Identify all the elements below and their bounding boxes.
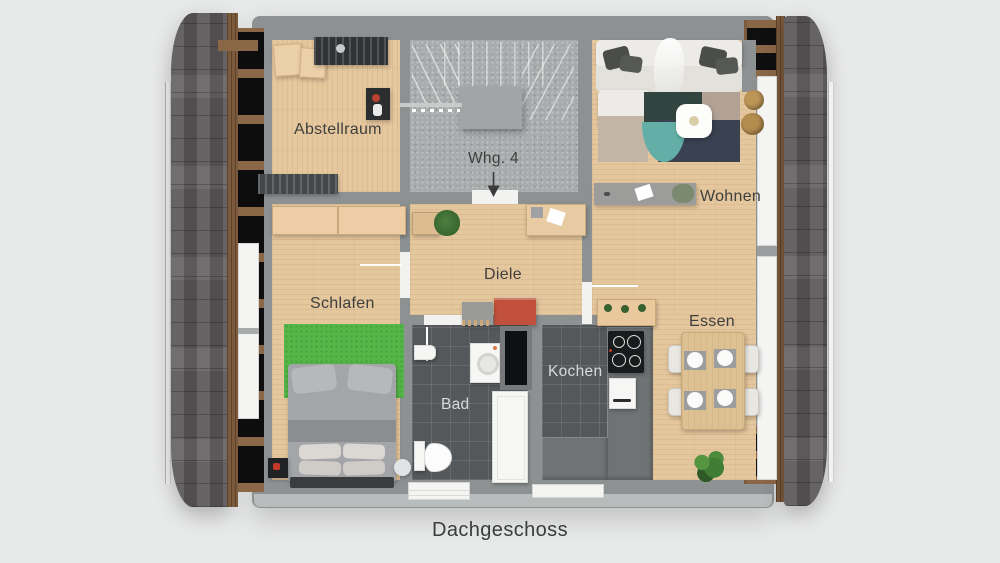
stair-railing <box>400 103 462 107</box>
cooktop-burner <box>612 353 626 367</box>
label-wohnen: Wohnen <box>700 188 761 206</box>
shelving-rack <box>314 37 388 65</box>
rack-item <box>336 44 345 53</box>
cooktop <box>608 331 644 373</box>
desk-laptop <box>531 207 543 218</box>
red-cabinet <box>494 298 536 325</box>
cooktop-burner <box>627 335 641 349</box>
floor-caption: Dachgeschoss <box>0 519 1000 542</box>
shelf-plant <box>621 305 629 313</box>
label-schlafen: Schlafen <box>310 295 375 313</box>
label-essen: Essen <box>689 313 735 331</box>
label-kochen: Kochen <box>548 363 602 381</box>
roof-right <box>784 16 827 506</box>
schlafen-door-opening <box>400 252 410 298</box>
hall-plant <box>434 210 460 236</box>
bed-pillow <box>343 443 385 459</box>
plate <box>717 350 733 366</box>
stair-landing <box>460 87 522 129</box>
oven <box>609 378 636 409</box>
bad-door-opening <box>424 315 462 325</box>
wall-stub <box>742 40 756 92</box>
sofa-pillow <box>715 57 739 75</box>
floor-plan-figure: Abstellraum Whg. 4 Wohnen Diele Schlafen… <box>0 0 1000 563</box>
floor-plant <box>688 448 728 484</box>
diele-east-door-opening <box>582 282 592 324</box>
plate <box>687 392 703 408</box>
bed-pillow <box>299 460 341 475</box>
cart-item-red <box>372 94 380 102</box>
rug-patch-beige <box>598 116 648 162</box>
bed-pillow <box>291 363 338 394</box>
coffee-table-decor <box>689 116 699 126</box>
plate <box>687 352 703 368</box>
gutter-right <box>828 82 834 482</box>
sideboard-plant <box>672 184 694 203</box>
schlafen-door-swing-line <box>360 264 402 266</box>
diele-east-door-swing-line <box>592 285 638 287</box>
shower-tray-line <box>497 396 525 480</box>
terrace-edge <box>254 494 772 507</box>
nightstand-item <box>273 463 280 470</box>
nightstand <box>394 459 411 476</box>
sofa-pillow <box>619 55 643 74</box>
oven-handle <box>613 399 631 402</box>
bath-tall-cabinet <box>505 331 527 385</box>
label-bad: Bad <box>441 396 469 414</box>
cooktop-indicator <box>609 349 612 352</box>
stair-steps-right <box>522 44 574 120</box>
window-bottom-kochen <box>532 484 604 498</box>
stair-railing-posts <box>412 109 460 112</box>
dining-table <box>681 332 745 430</box>
window-right-divider <box>757 246 777 256</box>
window-right-bottom <box>757 256 777 480</box>
label-abstellraum: Abstellraum <box>294 121 382 139</box>
shoe-rack-slats <box>462 320 490 326</box>
cooktop-burner <box>613 336 625 348</box>
cooktop-burner <box>629 355 641 367</box>
bed-pillow <box>347 363 394 394</box>
shelf-plant <box>638 304 646 312</box>
pouf <box>744 90 764 110</box>
washing-machine-door <box>477 353 499 375</box>
label-diele: Diele <box>484 266 522 284</box>
entrance-arrow-icon <box>485 171 502 198</box>
wardrobe <box>272 206 406 235</box>
bath-sink <box>414 345 436 360</box>
label-unit: Whg. 4 <box>468 150 519 168</box>
washer-indicator <box>493 346 497 350</box>
roof-left <box>171 13 230 507</box>
kitchen-counter-bottom <box>542 437 608 480</box>
sideboard-knob <box>604 192 610 196</box>
roof-lintel-icon <box>218 40 258 51</box>
window-left-divider <box>238 328 259 334</box>
bed-headboard <box>290 477 394 488</box>
low-shelf <box>258 174 338 194</box>
bed-blanket-band <box>288 420 396 442</box>
plate <box>717 390 733 406</box>
pouf <box>741 113 764 135</box>
roof-beam-left <box>227 13 238 507</box>
bed-pillow <box>343 460 385 475</box>
shelf-plant <box>604 304 612 312</box>
balcony-door-bad <box>408 482 470 500</box>
cart-item-white <box>373 104 382 116</box>
bed-pillow <box>299 443 341 459</box>
